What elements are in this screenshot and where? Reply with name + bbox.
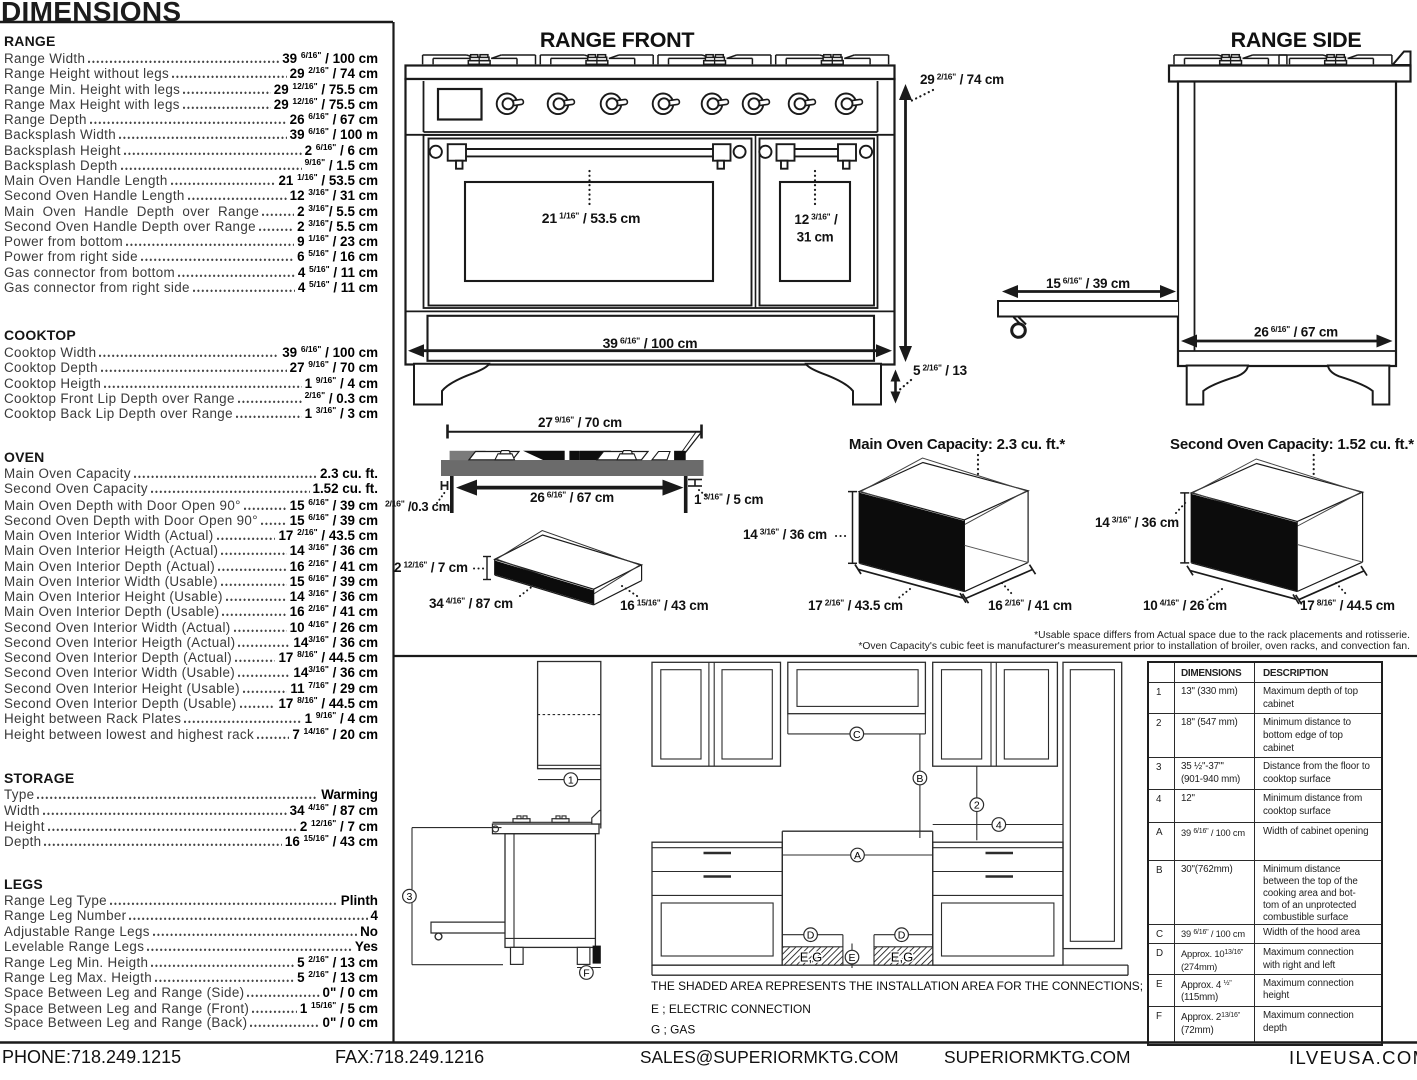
- svg-text:16 2/16" / 41 cm: 16 2/16" / 41 cm: [988, 598, 1072, 613]
- svg-text:G ; GAS: G ; GAS: [651, 1023, 695, 1037]
- svg-text:THE SHADED AREA REPRESENTS THE: THE SHADED AREA REPRESENTS THE INSTALLAT…: [651, 979, 1143, 993]
- svg-text:17 2/16" / 43.5 cm: 17 2/16" / 43.5 cm: [808, 598, 903, 613]
- svg-text:29 2/16" / 74 cm: 29 2/16" / 74 cm: [920, 72, 1004, 87]
- svg-text:4: 4: [996, 820, 1002, 832]
- svg-text:E: E: [848, 952, 855, 964]
- svg-text:10 4/16" / 26 cm: 10 4/16" / 26 cm: [1143, 598, 1227, 613]
- svg-text:D: D: [898, 930, 906, 942]
- svg-text:C: C: [853, 729, 861, 741]
- svg-text:14 3/16" / 36 cm: 14 3/16" / 36 cm: [743, 527, 827, 542]
- svg-text:3: 3: [406, 891, 412, 903]
- svg-text:RANGE SIDE: RANGE SIDE: [1231, 28, 1362, 52]
- svg-text:21 1/16" / 53.5 cm: 21 1/16" / 53.5 cm: [542, 210, 640, 226]
- svg-text:*Usable space differs from Act: *Usable space differs from Actual space …: [1034, 630, 1410, 641]
- svg-text:E,G: E,G: [891, 950, 913, 965]
- svg-text:Main Oven Capacity: 2.3 cu. ft: Main Oven Capacity: 2.3 cu. ft.*: [849, 436, 1066, 453]
- svg-text:D: D: [807, 930, 815, 942]
- svg-text:F: F: [583, 968, 589, 980]
- svg-text:1 3/16" / 5 cm: 1 3/16" / 5 cm: [694, 492, 764, 507]
- svg-text:2: 2: [974, 800, 980, 812]
- svg-text:16 15/16" / 43 cm: 16 15/16" / 43 cm: [620, 598, 709, 613]
- svg-text:Second Oven Capacity: 1.52 cu.: Second Oven Capacity: 1.52 cu. ft.*: [1170, 436, 1414, 453]
- svg-text:B: B: [916, 773, 923, 785]
- svg-text:E,G: E,G: [800, 950, 822, 965]
- svg-text:26 6/16" / 67 cm: 26 6/16" / 67 cm: [530, 490, 614, 505]
- svg-text:2 12/16" / 7 cm: 2 12/16" / 7 cm: [394, 560, 468, 575]
- svg-text:34 4/16" / 87 cm: 34 4/16" / 87 cm: [429, 596, 513, 611]
- svg-text:26 6/16" / 67 cm: 26 6/16" / 67 cm: [1254, 324, 1338, 339]
- svg-text:15 6/16" / 39 cm: 15 6/16" / 39 cm: [1046, 276, 1130, 291]
- svg-text:*Oven Capacity's cubic feet is: *Oven Capacity's cubic feet is manufactu…: [858, 641, 1410, 652]
- svg-text:31 cm: 31 cm: [797, 230, 834, 245]
- svg-text:27 9/16" / 70 cm: 27 9/16" / 70 cm: [538, 415, 622, 430]
- svg-text:14 3/16" / 36 cm: 14 3/16" / 36 cm: [1095, 515, 1179, 530]
- svg-text:1: 1: [568, 775, 574, 787]
- svg-text:39 6/16" / 100 cm: 39 6/16" / 100 cm: [603, 335, 698, 351]
- svg-text:17 8/16" / 44.5 cm: 17 8/16" / 44.5 cm: [1300, 598, 1395, 613]
- svg-text:RANGE FRONT: RANGE FRONT: [540, 28, 695, 52]
- svg-text:E ; ELECTRIC CONNECTION: E ; ELECTRIC CONNECTION: [651, 1002, 811, 1016]
- svg-text:5 2/16" / 13: 5 2/16" / 13: [913, 363, 968, 378]
- svg-text:2/16" /0.3 cm: 2/16" /0.3 cm: [385, 499, 450, 515]
- svg-text:A: A: [854, 850, 861, 862]
